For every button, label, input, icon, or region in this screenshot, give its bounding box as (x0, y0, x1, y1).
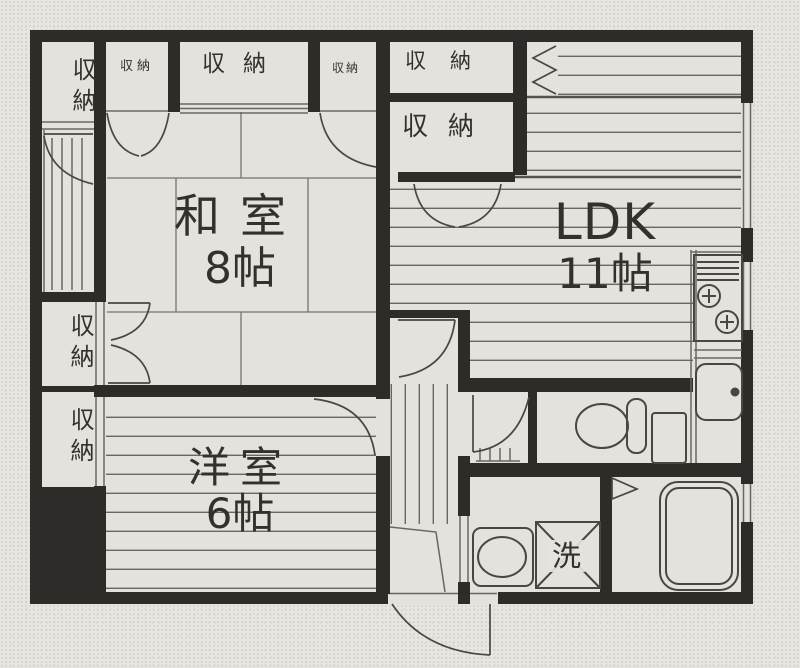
entrance-door (392, 604, 490, 655)
closet-label-mid-left-1: 収納 (44, 304, 92, 384)
room-label-youshitsu: 洋室 (136, 446, 344, 490)
room-label-washitsu: 和室 (138, 192, 342, 240)
closet-label-top-left: 収納 (40, 48, 94, 128)
closet-label-ldk-lower: 収納 (384, 114, 512, 141)
room-size-washitsu: 8帖 (138, 246, 342, 292)
room-size-ldk: 11帖 (512, 252, 698, 296)
closet-label-row-small-right: 収納 (316, 62, 376, 75)
room-size-youshitsu: 6帖 (136, 492, 344, 536)
floorplan-drawing (0, 0, 800, 668)
corridor-flooring (390, 384, 458, 524)
room-label-ldk: LDK (512, 196, 698, 249)
floorplan-scan: 収納 収納 収納 収納 収納 収納 収納 収納 和室 8帖 LDK 11帖 洋室… (0, 0, 800, 668)
laundry-label: 洗 (548, 540, 585, 572)
closet-label-row-main: 収納 (178, 52, 308, 76)
closet-label-row-small-left: 収納 (106, 60, 168, 74)
solid-block (30, 487, 106, 594)
closet-label-mid-left-2: 収納 (44, 394, 92, 482)
closet-label-ldk-upper: 収納 (388, 50, 512, 72)
